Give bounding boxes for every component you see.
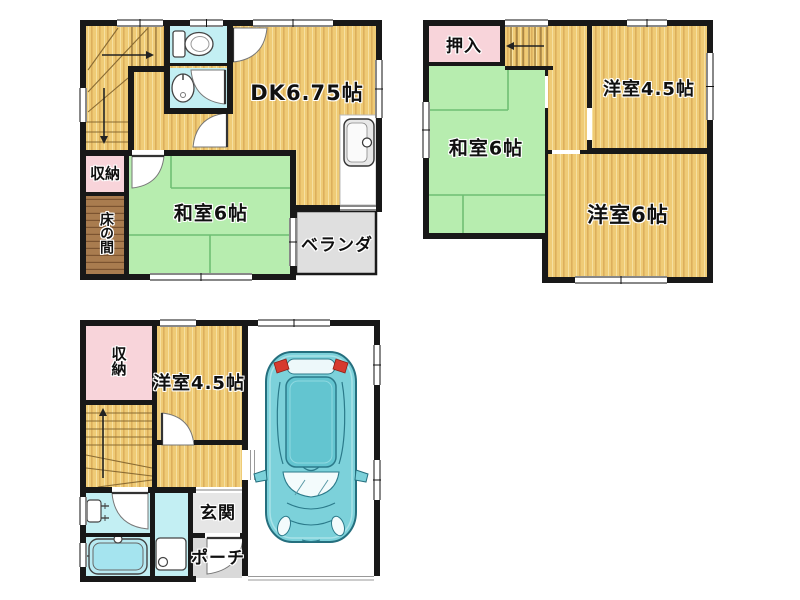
room-label-tokonoma: 床の間 (96, 212, 116, 254)
room-label-oshiire: 押入 (446, 32, 482, 57)
window (706, 53, 714, 120)
hall-floor-tr (548, 26, 587, 150)
window (627, 19, 667, 27)
window (79, 497, 87, 525)
rear-window (287, 359, 335, 374)
window (150, 273, 252, 281)
room-label-washitsu-tr: 和室6帖 (449, 134, 523, 161)
toilet-icon (173, 31, 213, 57)
window (575, 276, 667, 284)
kitchen-counter (340, 115, 376, 205)
window (422, 102, 430, 158)
room-label-genkan: 玄関 (200, 499, 236, 524)
room-label-yoshitsu6-tr: 洋室6帖 (587, 199, 669, 229)
window (117, 19, 163, 27)
room-label-washitsu-tl: 和室6帖 (174, 199, 248, 226)
window (79, 543, 87, 567)
faucet-icon (363, 138, 372, 147)
bathtub-icon (85, 535, 147, 574)
room-label-yoshitsu45-tr: 洋室4.5帖 (603, 75, 695, 101)
window (373, 345, 381, 385)
window (160, 319, 196, 327)
window (79, 88, 87, 122)
window (190, 19, 223, 27)
car-roof (286, 377, 336, 467)
sliding-opening (340, 205, 376, 211)
window (253, 19, 333, 27)
room-label-dk: DK6.75帖 (250, 77, 364, 107)
room-label-closet-bl: 収納 (109, 346, 130, 376)
window (258, 319, 330, 327)
mirror-right (355, 470, 368, 482)
room-label-veranda: ベランダ (301, 231, 373, 256)
floorplan-image: DK6.75帖 和室6帖 収納 床の間 ベランダ 押入 和室6帖 洋室4.5帖 … (0, 0, 800, 600)
room-label-closet-tl: 収納 (90, 163, 120, 184)
washer-pan-icon (156, 538, 186, 570)
window (373, 460, 381, 500)
window (505, 19, 548, 27)
room-label-yoshitsu45-bl: 洋室4.5帖 (153, 369, 245, 395)
veranda-window (289, 218, 297, 266)
room-label-porch: ポーチ (191, 544, 245, 569)
mirror-left (254, 470, 267, 482)
window (375, 60, 383, 118)
car-top-view (254, 352, 368, 542)
washbasin-icon (172, 74, 194, 102)
hall-floor-bl (157, 445, 242, 487)
